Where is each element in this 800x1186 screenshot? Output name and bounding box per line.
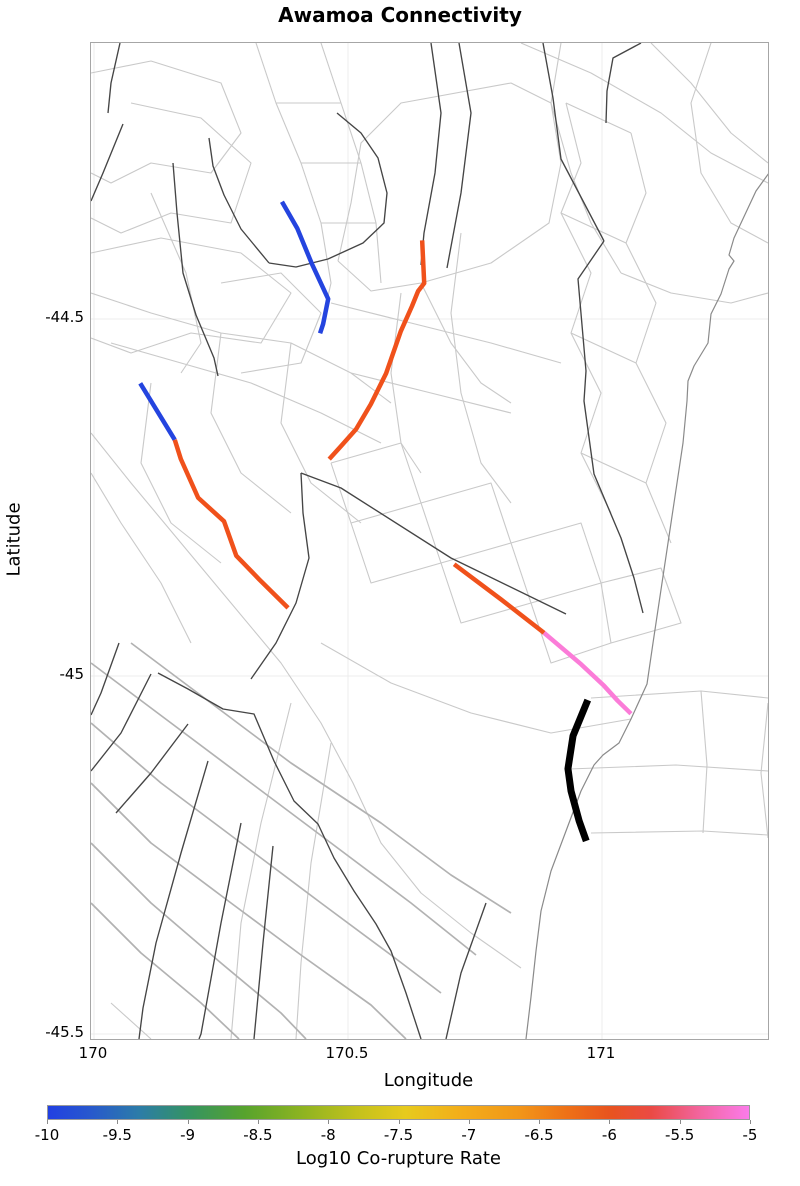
colorbar-tick-mark	[539, 1120, 540, 1124]
y-axis-label: Latitude	[4, 490, 25, 590]
x-tick-label: 171	[587, 1044, 616, 1062]
colorbar-tick-label: -6	[602, 1126, 617, 1144]
figure: Awamoa Connectivity Latitude -44.5-45-45…	[0, 0, 800, 1186]
colorbar-tick-label: -7	[461, 1126, 476, 1144]
colorbar-tick-mark	[469, 1120, 470, 1124]
x-axis-label: Longitude	[90, 1070, 767, 1091]
map-svg	[91, 43, 768, 1039]
colorbar-tick-label: -5.5	[665, 1126, 694, 1144]
colorbar-tick-label: -5	[743, 1126, 758, 1144]
chart-title: Awamoa Connectivity	[0, 3, 800, 27]
colorbar-gradient	[47, 1105, 750, 1120]
colorbar-tick-mark	[258, 1120, 259, 1124]
colorbar-tick-mark	[188, 1120, 189, 1124]
y-tick-label: -44.5	[0, 308, 84, 326]
y-tick-label: -45	[0, 665, 84, 683]
colorbar-tick-label: -9	[180, 1126, 195, 1144]
colorbar-tick-mark	[328, 1120, 329, 1124]
y-tick-label: -45.5	[0, 1023, 84, 1041]
map-plot-area	[90, 42, 769, 1040]
x-tick-label: 170.5	[326, 1044, 369, 1062]
colorbar-tick-mark	[680, 1120, 681, 1124]
colorbar-tick-label: -10	[35, 1126, 60, 1144]
colorbar-tick-mark	[750, 1120, 751, 1124]
colorbar-tick-label: -8.5	[243, 1126, 272, 1144]
colorbar-tick-label: -7.5	[384, 1126, 413, 1144]
colorbar-label: Log10 Co-rupture Rate	[47, 1148, 750, 1169]
colorbar-tick-mark	[47, 1120, 48, 1124]
colorbar-tick-mark	[117, 1120, 118, 1124]
colorbar-tick-mark	[399, 1120, 400, 1124]
colorbar-tick-label: -9.5	[103, 1126, 132, 1144]
colorbar-tick-mark	[609, 1120, 610, 1124]
colorbar-tick-label: -6.5	[524, 1126, 553, 1144]
x-tick-label: 170	[79, 1044, 108, 1062]
colorbar-tick-label: -8	[321, 1126, 336, 1144]
